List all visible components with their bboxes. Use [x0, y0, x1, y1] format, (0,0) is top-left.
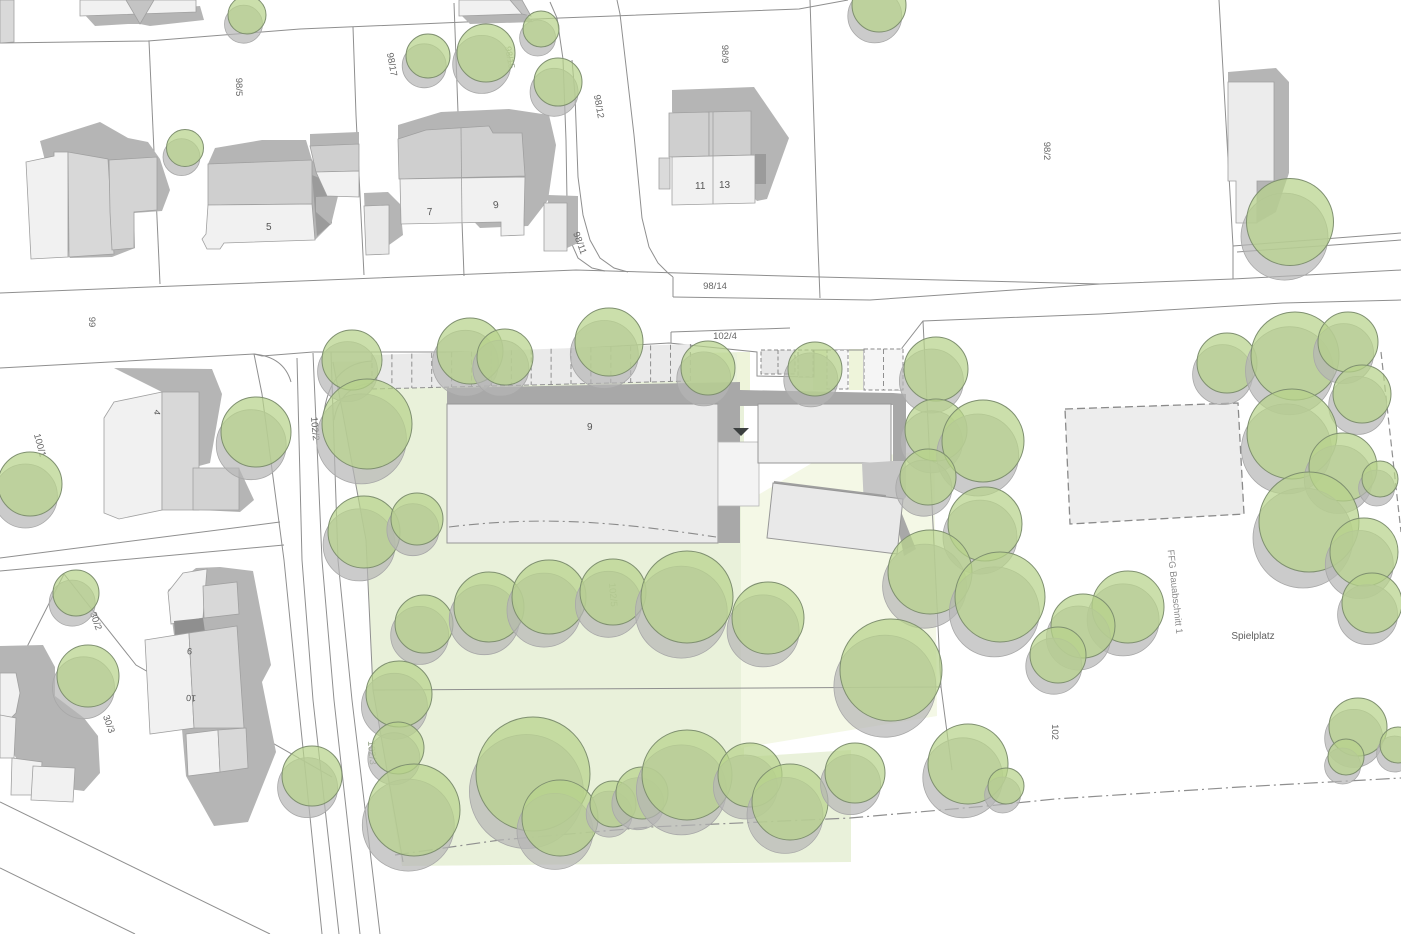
svg-text:98/14: 98/14: [703, 281, 727, 292]
svg-text:98/5: 98/5: [233, 78, 244, 97]
svg-text:98/2: 98/2: [1041, 142, 1052, 161]
svg-text:102/4: 102/4: [713, 331, 737, 342]
svg-text:9: 9: [187, 646, 193, 656]
svg-text:102: 102: [1049, 724, 1060, 740]
svg-text:98/9: 98/9: [719, 45, 730, 64]
svg-text:11: 11: [695, 181, 706, 192]
svg-text:99: 99: [86, 317, 97, 328]
svg-text:5: 5: [266, 222, 272, 233]
svg-text:9: 9: [587, 422, 593, 433]
svg-text:10: 10: [186, 693, 197, 704]
svg-text:13: 13: [719, 180, 731, 191]
svg-text:Spielplatz: Spielplatz: [1231, 631, 1274, 642]
